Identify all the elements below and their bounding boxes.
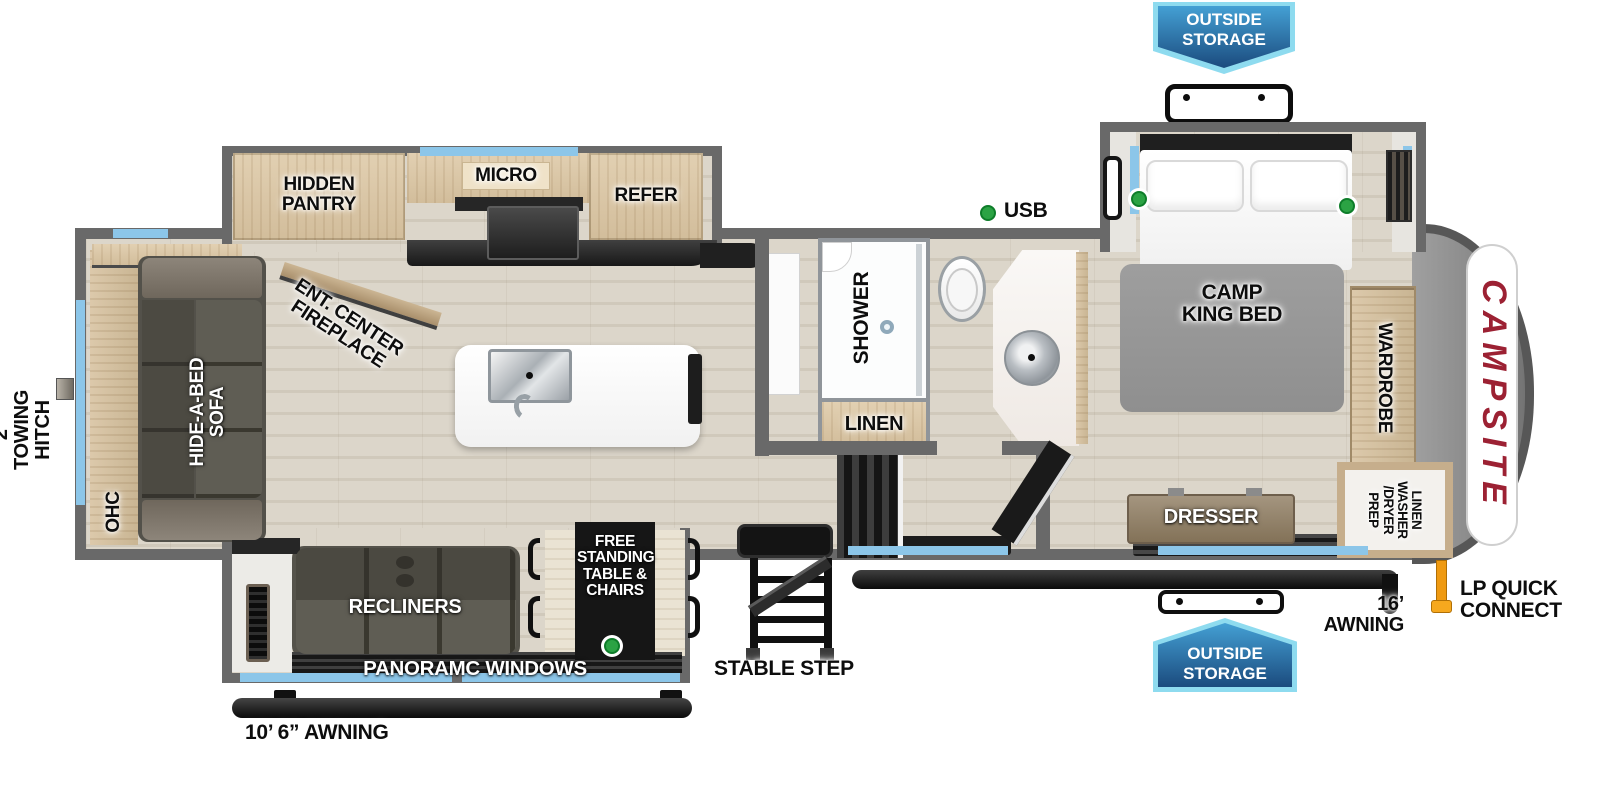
toilet-lid xyxy=(946,268,978,312)
sink-drain xyxy=(526,372,533,379)
ohc-label: OHC xyxy=(104,484,128,540)
kitchen-slideout-window xyxy=(420,147,578,156)
badge-bottom-text: OUTSIDE STORAGE xyxy=(1153,644,1297,685)
awning-right-tube xyxy=(852,570,1398,589)
slideout-shelf-dark xyxy=(232,538,300,554)
lp-quick-connect-label: LP QUICK CONNECT xyxy=(1460,578,1600,622)
island-side-slot xyxy=(688,354,702,424)
outside-storage-badge-top: OUTSIDE STORAGE xyxy=(1153,2,1295,74)
usb-green-dot xyxy=(980,205,996,221)
shower-label: SHOWER xyxy=(851,243,881,393)
sofa-armrest-top xyxy=(142,258,262,298)
rv-floorplan-canvas: 2” TOWING HITCH HIDDEN PANTRY MICRO REFE… xyxy=(0,0,1600,792)
panoramic-windows-label: PANORAMC WINDOWS xyxy=(360,658,590,680)
dinette-table-right xyxy=(655,530,685,656)
awning-left-label: 10’ 6” AWNING xyxy=(245,722,425,744)
dresser-hinge-left xyxy=(1168,488,1184,496)
bed-usb-dot-right xyxy=(1339,198,1355,214)
bed-usb-dot-left xyxy=(1131,191,1147,207)
bath-sink-drain xyxy=(1028,354,1035,361)
awning-bracket-pin-left xyxy=(1176,598,1183,605)
shower-glass xyxy=(916,244,922,396)
awning-right-label: 16’ AWNING xyxy=(1294,594,1404,636)
dinette-label: FREE STANDING TABLE & CHAIRS xyxy=(577,534,653,599)
usb-label: USB xyxy=(1004,200,1064,222)
badge-top-text: OUTSIDE STORAGE xyxy=(1153,10,1295,51)
storage-door-pin-left xyxy=(1183,94,1190,101)
dinette-green-dot xyxy=(604,638,620,654)
stable-step-rail-diagonal xyxy=(748,556,832,617)
cooktop xyxy=(487,206,579,260)
wardrobe-label: WARDROBE xyxy=(1370,308,1394,448)
dinette-chair-1 xyxy=(528,538,540,580)
window-bottom-bedroom xyxy=(1158,546,1368,555)
window-top-left xyxy=(113,229,168,238)
recliner-console-cup2 xyxy=(396,574,414,587)
campsite-banner: CAMPSITE xyxy=(1466,244,1518,546)
lp-quick-connect-pipe xyxy=(1436,560,1447,604)
dresser-hinge-right xyxy=(1246,488,1262,496)
fireplace xyxy=(246,584,270,662)
sofa-label: HIDE-A-BED SOFA xyxy=(188,342,244,482)
bedroom-vent xyxy=(1386,150,1412,222)
dresser-label: DRESSER xyxy=(1141,507,1281,528)
kitchen-counter-end xyxy=(700,243,763,268)
recliner-console-cup1 xyxy=(396,556,414,569)
dinette-chair-2 xyxy=(528,596,540,638)
refer-label: REFER xyxy=(596,186,696,206)
awning-bracket-pin-right xyxy=(1256,598,1263,605)
stable-step-rung-4 xyxy=(754,636,828,643)
awning-left-tube xyxy=(232,698,692,718)
hidden-pantry-label: HIDDEN PANTRY xyxy=(269,175,369,215)
lp-quick-connect-base xyxy=(1431,600,1452,613)
bed-pillow-left xyxy=(1146,160,1244,212)
bath-wall-left xyxy=(755,228,769,456)
dinette-table-left xyxy=(545,530,575,656)
campsite-logo: CAMPSITE xyxy=(1471,245,1513,545)
stable-step-rung-3 xyxy=(754,616,828,623)
outside-storage-badge-bottom: OUTSIDE STORAGE xyxy=(1153,618,1297,692)
hall-steps xyxy=(837,451,903,558)
bath-wall-bottom-left xyxy=(755,441,937,455)
dinette-chair-3 xyxy=(688,538,700,580)
shower-drain xyxy=(880,320,894,334)
linen-label: LINEN xyxy=(824,414,924,435)
entry-step-well xyxy=(737,524,833,558)
bedroom-window-left xyxy=(1103,156,1122,220)
sofa-armrest-bottom xyxy=(142,500,262,540)
storage-door-pin-right xyxy=(1258,94,1265,101)
bed-label: CAMP KING BED xyxy=(1157,282,1307,326)
bedroom-storage-door xyxy=(1165,84,1293,124)
recliners-label: RECLINERS xyxy=(330,597,480,618)
bed-pillow-right xyxy=(1250,160,1348,212)
towing-hitch-label: 2” TOWING HITCH xyxy=(0,370,71,490)
dinette-chair-4 xyxy=(688,596,700,638)
window-rear-wall xyxy=(76,300,85,505)
window-bottom-door-side xyxy=(848,546,1008,555)
washer-dryer-label: LINEN WASHER /DRYER PREP xyxy=(1347,462,1423,558)
micro-label: MICRO xyxy=(462,166,550,186)
vanity-edge xyxy=(1076,252,1088,444)
tall-counter xyxy=(765,253,800,395)
stable-step-label: STABLE STEP xyxy=(714,658,874,680)
